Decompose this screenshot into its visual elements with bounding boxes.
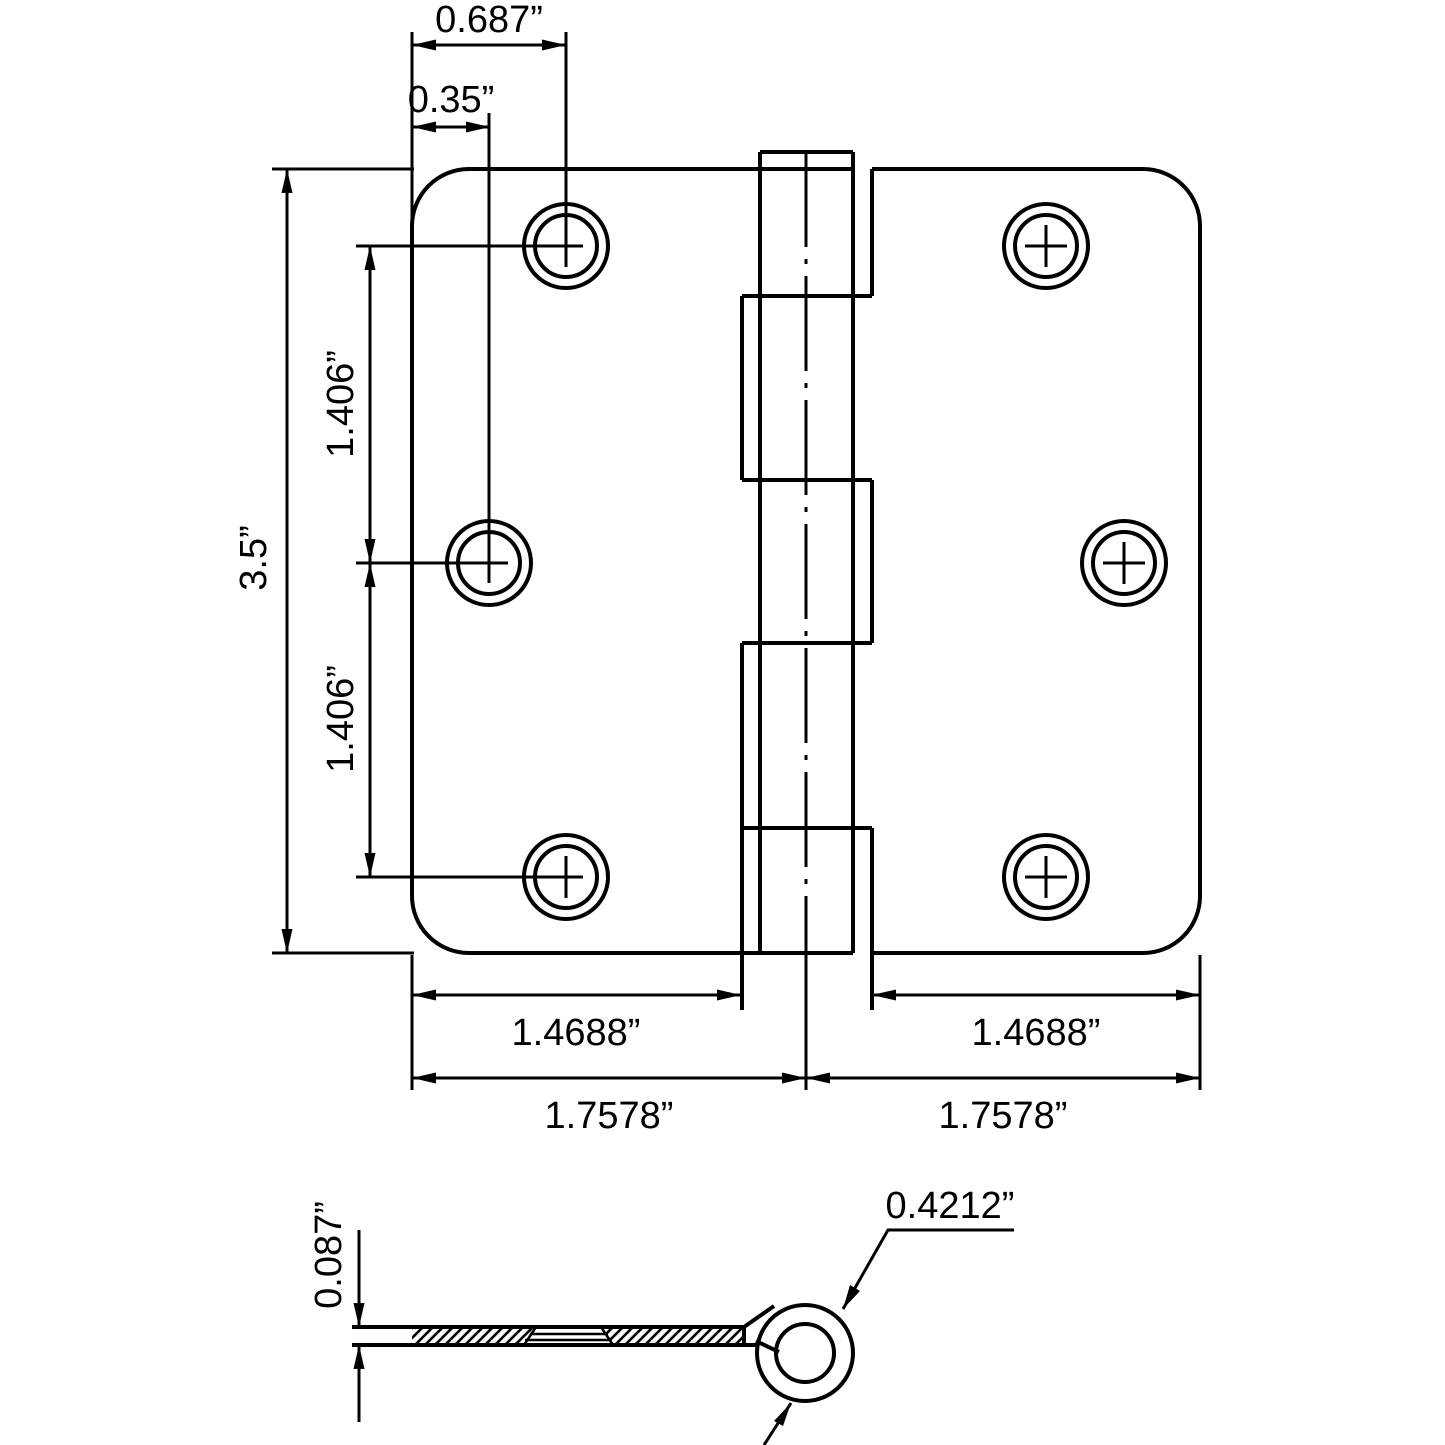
- screw-hole-mid-right: [1082, 521, 1166, 605]
- screw-hole-bottom-left: [356, 835, 608, 919]
- dim-label-leaf-thickness: 0.087”: [308, 1201, 350, 1309]
- arrowhead-bottom: [282, 929, 293, 953]
- arrowhead: [412, 990, 436, 1001]
- arrowhead: [774, 1403, 791, 1426]
- dim-label-lower-hole-spacing: 1.406”: [320, 665, 362, 773]
- hatch-region-right: [601, 1327, 743, 1345]
- arrowhead: [412, 1073, 436, 1084]
- arrowhead-mid-lower: [365, 563, 376, 587]
- curl-top-transition: [744, 1306, 774, 1327]
- dim-label-top-hole-offset: 0.687”: [435, 0, 543, 41]
- screw-hole-mid-left: [356, 113, 531, 605]
- arrowhead-right: [466, 122, 490, 133]
- leader-knuckle-diameter: 0.4212”: [843, 1185, 1014, 1309]
- arrowhead: [1176, 1073, 1200, 1084]
- arrowhead-top: [282, 169, 293, 193]
- dim-label-right-screw-area: 1.4688”: [972, 1012, 1101, 1054]
- dim-mid-hole-offset: 0.35”: [408, 79, 495, 133]
- dim-label-right-leaf-width: 1.7578”: [939, 1095, 1068, 1137]
- arrowhead-up: [354, 1345, 365, 1369]
- hatch-region-left: [412, 1327, 536, 1345]
- arrowhead-mid-upper: [365, 539, 376, 563]
- dim-label-mid-hole-offset: 0.35”: [408, 79, 495, 121]
- arrowhead: [806, 1073, 830, 1084]
- screw-hole-bottom-right: [1004, 835, 1088, 919]
- arrowhead-down: [354, 1303, 365, 1327]
- top-view: 0.687” 0.35” 3.5” 1.406” 1.406”: [233, 0, 1200, 1137]
- drawing-canvas: 0.687” 0.35” 3.5” 1.406” 1.406”: [0, 0, 1445, 1445]
- screw-hole-top-right: [1004, 204, 1088, 288]
- pin-hole-circle: [776, 1324, 834, 1382]
- arrowhead: [717, 990, 741, 1001]
- arrowhead: [1176, 990, 1200, 1001]
- arrowhead-left: [412, 122, 436, 133]
- arrowhead-top: [365, 246, 376, 270]
- leaf-cross-section: [352, 1327, 758, 1345]
- leader-line: [843, 1230, 1014, 1309]
- arrowhead-right: [542, 40, 566, 51]
- arrowhead: [843, 1285, 860, 1309]
- arrowhead: [782, 1073, 806, 1084]
- hinge-technical-drawing: 0.687” 0.35” 3.5” 1.406” 1.406”: [0, 0, 1445, 1445]
- dim-label-left-screw-area: 1.4688”: [512, 1012, 641, 1054]
- arrowhead: [872, 990, 896, 1001]
- dim-label-left-leaf-width: 1.7578”: [545, 1095, 674, 1137]
- knuckle-curl: [744, 1305, 853, 1401]
- side-view: 0.087” 0.4212”: [308, 1185, 1014, 1445]
- curl-outer-circle: [757, 1305, 853, 1401]
- dim-hinge-height: 3.5”: [233, 169, 414, 953]
- leader-bottom: [764, 1403, 791, 1445]
- dim-bottom-widths: 1.4688” 1.4688” 1.7578” 1.7578”: [412, 953, 1200, 1137]
- arrowhead-bottom: [365, 853, 376, 877]
- left-leaf-outline: [412, 169, 853, 953]
- dim-label-knuckle-diameter: 0.4212”: [886, 1185, 1015, 1227]
- screw-hole-top-left: [356, 32, 608, 288]
- dim-label-height: 3.5”: [233, 525, 275, 590]
- dim-label-upper-hole-spacing: 1.406”: [320, 350, 362, 458]
- dim-leaf-thickness: 0.087”: [308, 1201, 365, 1422]
- arrowhead-left: [412, 40, 436, 51]
- knuckle-barrel: [742, 152, 872, 1010]
